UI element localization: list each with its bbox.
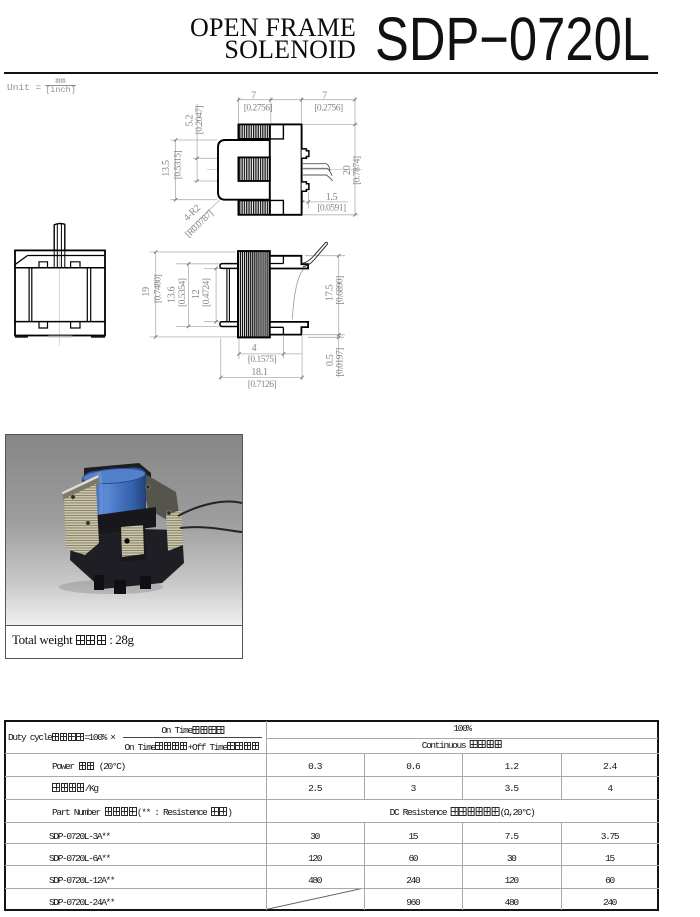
svg-text:12: 12 xyxy=(191,289,202,299)
svg-text:[0.6890]: [0.6890] xyxy=(336,276,346,305)
svg-text:7: 7 xyxy=(251,91,256,102)
svg-text:[0.7126]: [0.7126] xyxy=(248,380,277,390)
svg-text:13.6: 13.6 xyxy=(166,286,177,303)
svg-text:[0.0197]: [0.0197] xyxy=(336,348,346,377)
svg-text:[0.7874]: [0.7874] xyxy=(353,156,363,185)
svg-text:20: 20 xyxy=(342,165,353,175)
svg-text:[0.2756]: [0.2756] xyxy=(314,104,343,114)
svg-text:18.1: 18.1 xyxy=(251,367,268,378)
svg-text:[0.5315]: [0.5315] xyxy=(173,150,183,179)
svg-text:[0.7480]: [0.7480] xyxy=(153,274,163,303)
svg-text:[0.5354]: [0.5354] xyxy=(178,278,188,307)
svg-text:[0.2047]: [0.2047] xyxy=(195,106,205,135)
svg-text:4: 4 xyxy=(252,343,257,354)
svg-text:0.5: 0.5 xyxy=(325,354,336,366)
svg-text:7: 7 xyxy=(322,91,327,102)
svg-text:17.5: 17.5 xyxy=(325,284,336,301)
svg-text:5.2: 5.2 xyxy=(185,115,196,127)
svg-text:1.5: 1.5 xyxy=(326,192,338,203)
svg-text:[0.0591]: [0.0591] xyxy=(317,204,346,214)
svg-text:13.5: 13.5 xyxy=(161,160,172,177)
svg-text:[0.1575]: [0.1575] xyxy=(248,355,277,365)
svg-text:19: 19 xyxy=(141,287,152,297)
svg-text:[0.2756]: [0.2756] xyxy=(244,104,273,114)
svg-text:[0.4724]: [0.4724] xyxy=(202,278,212,307)
